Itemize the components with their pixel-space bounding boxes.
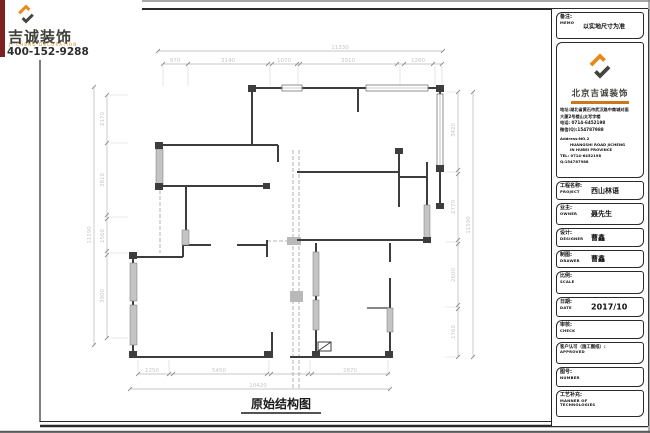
dim-bottom-total: 10420 xyxy=(249,383,267,389)
column-blocks xyxy=(129,85,444,358)
project-value: 西山林语 xyxy=(591,186,619,196)
dim-top-seg: 1260 xyxy=(411,58,425,64)
company-phone: 400-152-9288 xyxy=(7,46,89,58)
designer-value: 曹鑫 xyxy=(591,233,605,243)
dimension-lines xyxy=(94,51,473,389)
dim-right-seg: 2600 xyxy=(451,268,457,282)
dim-left-seg: 3900 xyxy=(100,289,106,303)
approved-box: 客户认可（施工图纸）:APPROVED xyxy=(556,342,644,364)
dim-left-total: 11190 xyxy=(87,226,93,244)
accent-bar xyxy=(571,101,629,104)
dim-top-total: 11330 xyxy=(331,45,349,51)
check-box: 审核:CHECK xyxy=(556,320,644,339)
company-info-box: 北京吉诚装饰 地址:湖北省黄石市武汉路中商城对面 大厦2号楼山太写字楼 电话: … xyxy=(556,42,644,178)
dim-right-seg: 2770 xyxy=(451,200,457,214)
extension-lines xyxy=(110,66,456,372)
dim-top-seg: 3910 xyxy=(341,58,355,64)
dim-right-seg: 3420 xyxy=(451,123,457,137)
dim-top-seg: 1070 xyxy=(277,58,291,64)
dimension-labels: 11330 970 3140 1070 3910 1260 11190 2170… xyxy=(87,45,472,389)
company-logo-block: 吉诚装饰 JI CHENG DECORATION 400-152-9288 xyxy=(0,0,142,60)
qq-en-line: Q:154787988 xyxy=(560,159,640,165)
drawing-title: 原始结构图 xyxy=(251,396,311,411)
dimension-ticks xyxy=(92,49,475,391)
memo-box: 备注: MEMO 以实地尺寸为准 xyxy=(556,12,644,39)
project-box: 工程名称:PROJECT 西山林语 xyxy=(556,181,644,200)
scale-box: 比例:SCALE xyxy=(556,271,644,294)
dim-right-total: 11590 xyxy=(466,216,472,234)
drawing-title-group: 原始结构图 xyxy=(241,396,321,413)
company-logo-icon xyxy=(584,50,616,82)
beam-blocks xyxy=(287,237,303,302)
date-value: 2017/10 xyxy=(591,303,627,312)
fixture-symbol xyxy=(318,342,331,351)
wechat-line: 微信(Q):154787988 xyxy=(560,127,640,134)
date-box: 日期:DATE 2017/10 xyxy=(556,297,644,317)
hatched-windows xyxy=(130,149,430,345)
memo-value: 以实地尺寸为准 xyxy=(583,21,625,30)
dim-bottom-seg: 5450 xyxy=(212,368,226,374)
dim-bottom-seg: 1250 xyxy=(145,368,159,374)
company-logo-icon xyxy=(14,2,38,26)
technology-box: 工艺补充: MANNER OF TECHNOLOGIES xyxy=(556,390,644,417)
dim-top-seg: 970 xyxy=(170,58,181,64)
designer-box: 设计:DESIGNER 曹鑫 xyxy=(556,228,644,247)
owner-value: 聂先生 xyxy=(591,209,612,219)
dim-right-seg: 1760 xyxy=(451,325,457,339)
owner-box: 业主:OWNER 聂先生 xyxy=(556,203,644,225)
drawer-value: 曹鑫 xyxy=(591,254,605,264)
drawer-box: 制图:DRAWER 曹鑫 xyxy=(556,250,644,268)
dim-left-seg: 2170 xyxy=(100,112,106,126)
window-symbols xyxy=(282,85,443,168)
titleblock-company-name: 北京吉诚装饰 xyxy=(557,87,643,99)
title-block: 备注: MEMO 以实地尺寸为准 北京吉诚装饰 地址:湖北省黄石市武汉路中商城对… xyxy=(551,9,648,426)
floorplan-walls xyxy=(133,88,440,357)
dim-left-seg: 1560 xyxy=(100,229,106,243)
drawing-sheet: 11330 970 3140 1070 3910 1260 11190 2170… xyxy=(0,0,650,433)
red-edge-strip xyxy=(0,0,5,57)
address-cn-line: 地址:湖北省黄石市武汉路中商城对面 xyxy=(560,107,640,114)
dim-top-seg: 3140 xyxy=(221,58,235,64)
dim-left-seg: 3810 xyxy=(100,173,106,187)
dim-bottom-seg: 2870 xyxy=(343,368,357,374)
memo-label-en: MEMO xyxy=(560,21,574,25)
number-box: 图号:NUMBER xyxy=(556,367,644,387)
